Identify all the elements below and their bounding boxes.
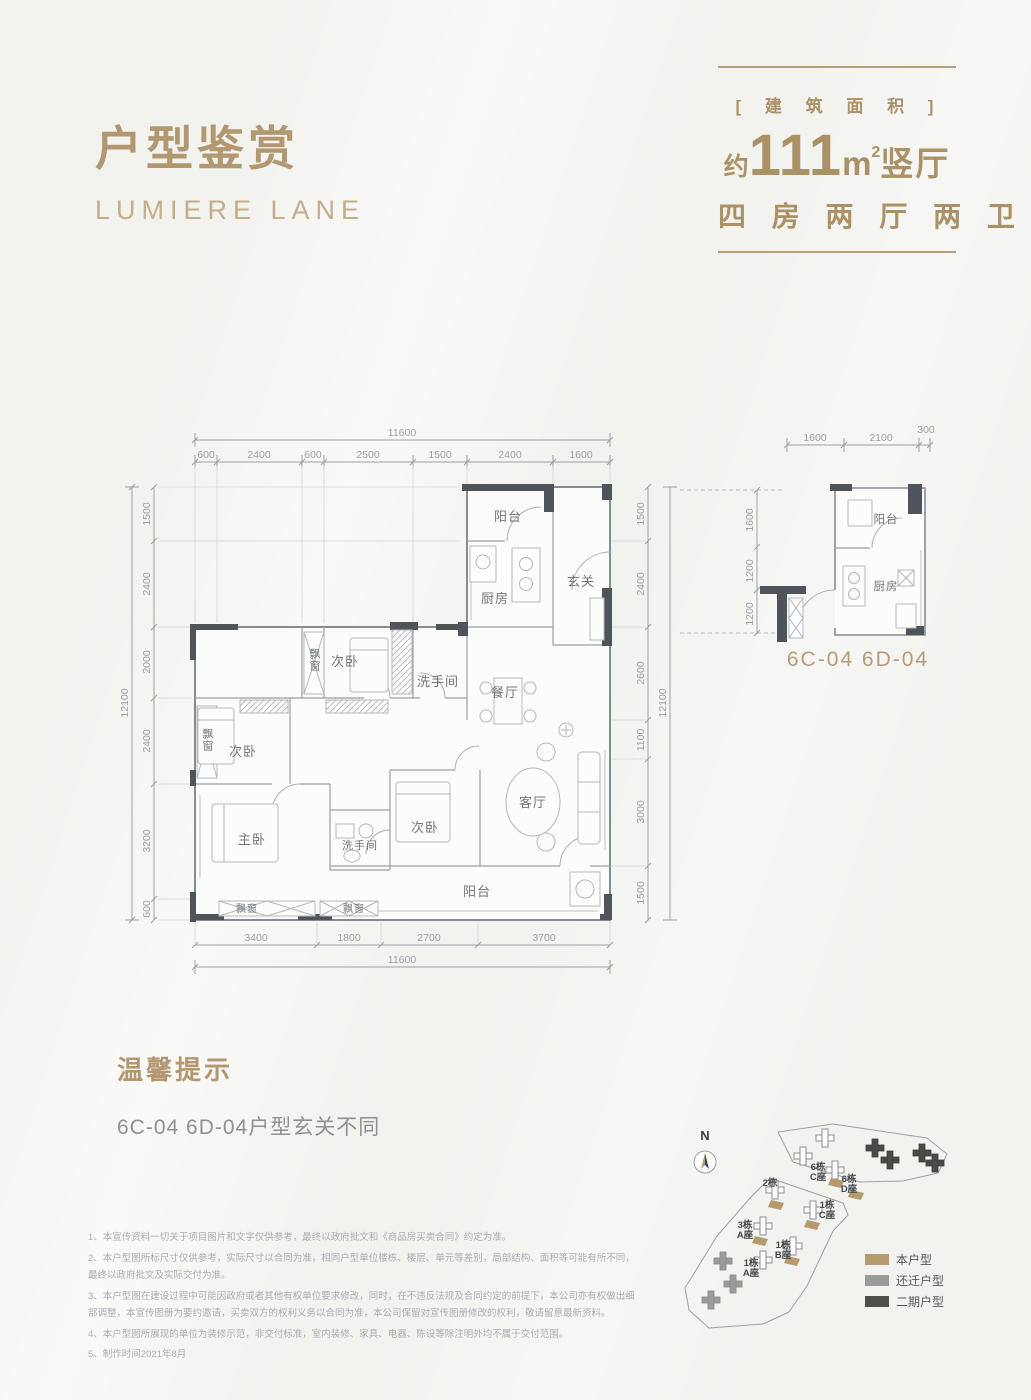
dim-right-1: 2400 [635, 572, 647, 596]
floorplan-drawing: 11600 600 2400 600 2500 1500 2400 1600 1… [0, 400, 1031, 1030]
legend-swatch-relocation [865, 1275, 889, 1286]
dim-left-3: 2400 [141, 729, 153, 753]
area-suffix: 竖厅 [880, 137, 950, 185]
mini-room-label-kitchen: 厨房 [874, 580, 899, 593]
building-label: C座 [810, 1171, 827, 1183]
dim-right-0: 1500 [635, 502, 647, 526]
north-label: N [700, 1128, 709, 1143]
legend-label-relocation: 还迁户型 [896, 1273, 944, 1288]
building-label: A座 [737, 1229, 754, 1241]
building-label: A座 [743, 1267, 760, 1279]
area-value: 111 [749, 127, 842, 185]
floorplan-poster: 户型鉴赏 LUMIERE LANE [ 建 筑 面 积 ] 约 111 m 2 … [0, 0, 1031, 1400]
gold-rule-top [718, 66, 956, 68]
dim-top-5: 2400 [498, 449, 522, 461]
dim-bottom-total: 11600 [388, 954, 417, 966]
page-title: 户型鉴赏 [95, 110, 365, 179]
room-label-bedroom-b: 次卧 [229, 744, 257, 759]
dim-left-total: 12100 [119, 688, 131, 717]
room-layout-label: 四 房 两 厅 两 卫 [718, 195, 956, 235]
dim-top-4: 1500 [428, 449, 452, 461]
room-label-bay-d: 飘窗 [343, 902, 365, 915]
room-label-living: 客厅 [519, 795, 547, 810]
area-unit: m [842, 145, 871, 183]
mini-dim-top-1: 2100 [869, 432, 893, 444]
area-unit-sup: 2 [871, 144, 880, 162]
mini-dim-top-0: 1600 [803, 432, 827, 444]
dim-top-2: 600 [304, 449, 322, 461]
site-legend: 本户型 还迁户型 二期户型 [865, 1252, 944, 1309]
building-label: 2栋 [763, 1177, 778, 1189]
room-label-balcony-top: 阳台 [494, 509, 522, 524]
room-label-balcony-bottom: 阳台 [463, 884, 491, 899]
area-bracket-label: [ 建 筑 面 积 ] [718, 92, 956, 117]
mini-dim-left-0: 1600 [744, 508, 756, 532]
room-label-bedroom-a: 次卧 [331, 654, 359, 669]
mini-plan-connector-lines [680, 490, 782, 633]
mini-dim-top-2: 300 [917, 424, 935, 436]
mini-dim-left-1: 1200 [744, 559, 756, 583]
dim-right-total: 12100 [657, 688, 669, 717]
disclaimer-line-3: 3、本户型图在建设过程中可能因政府或者其他有权单位要求修改，同时，在不违反法规及… [88, 1288, 636, 1323]
room-label-dining: 餐厅 [491, 685, 519, 700]
tips-content: 6C-04 6D-04户型玄关不同 [117, 1111, 380, 1141]
disclaimer-block: 1、本宣传资料一切关于项目图片和文字仅供参考，最终以政府批文和《商品房买卖合同》… [88, 1229, 636, 1367]
dim-top-3: 2500 [356, 449, 380, 461]
building-label: B座 [775, 1249, 792, 1261]
disclaimer-line-1: 1、本宣传资料一切关于项目图片和文字仅供参考，最终以政府批文和《商品房买卖合同》… [88, 1229, 636, 1247]
disclaimer-line-5: 5、制作时间2021年8月 [88, 1346, 636, 1364]
dim-left-4: 3200 [141, 829, 153, 853]
legend-label-current: 本户型 [896, 1252, 932, 1267]
tips-block: 温馨提示 6C-04 6D-04户型玄关不同 [117, 1050, 380, 1141]
building-label: C座 [819, 1209, 836, 1221]
room-label-kitchen: 厨房 [481, 591, 509, 606]
room-label-foyer: 玄关 [567, 574, 595, 589]
dim-bottom-0: 3400 [244, 932, 268, 944]
area-approx: 约 [724, 147, 749, 183]
gold-rule-bottom [718, 251, 956, 253]
compass-icon [694, 1151, 716, 1173]
building-label: D座 [841, 1183, 858, 1195]
mini-room-label-balcony: 阳台 [874, 512, 899, 526]
header: 户型鉴赏 LUMIERE LANE [95, 110, 365, 226]
dim-right-3: 1100 [635, 729, 647, 752]
dim-left-2: 2000 [141, 650, 153, 674]
mini-plan-caption: 6C-04 6D-04 [787, 648, 929, 671]
room-label-bay-b: 飘窗 [201, 728, 214, 752]
dim-right-5: 1500 [635, 881, 647, 905]
dim-left-5: 600 [141, 900, 153, 918]
dim-bottom-3: 3700 [532, 932, 556, 944]
dim-bottom-1: 1800 [337, 932, 361, 944]
dim-bottom-2: 2700 [417, 932, 441, 944]
tips-title: 温馨提示 [117, 1050, 380, 1087]
dim-left-0: 1500 [141, 502, 153, 526]
dim-right-2: 2600 [635, 661, 647, 685]
legend-label-phase2: 二期户型 [896, 1294, 944, 1309]
room-label-bedroom-c: 次卧 [411, 820, 439, 835]
dim-right-4: 3000 [635, 800, 647, 824]
disclaimer-line-2: 2、本户型图所标尺寸仅供参考，实际尺寸以合同为准，相同户型单位楼栋、楼层、单元等… [88, 1250, 636, 1285]
dim-top-1: 2400 [247, 449, 271, 461]
mini-plan-body: 阳台 厨房 6C-04 6D-04 [760, 484, 929, 671]
room-label-master: 主卧 [238, 832, 266, 847]
page-subtitle: LUMIERE LANE [95, 195, 365, 226]
site-map: N [675, 1118, 965, 1353]
mini-dim-left-2: 1200 [744, 602, 756, 626]
room-label-bay-a: 飘窗 [308, 648, 321, 672]
room-label-bay-c: 飘窗 [236, 902, 258, 915]
dim-top-total: 11600 [388, 427, 417, 439]
room-label-bath-a: 洗手间 [417, 674, 459, 689]
legend-swatch-phase2 [865, 1296, 889, 1307]
legend-swatch-current [865, 1254, 889, 1265]
dim-top-0: 600 [197, 449, 215, 461]
dim-top-6: 1600 [569, 449, 593, 461]
dim-left-1: 2400 [141, 572, 153, 596]
area-line: 约 111 m 2 竖厅 [718, 127, 956, 185]
disclaimer-line-4: 4、本户型图所展现的单位为装修示范，非交付标准，室内装修、家具、电器、陈设等除注… [88, 1326, 636, 1344]
area-block: [ 建 筑 面 积 ] 约 111 m 2 竖厅 四 房 两 厅 两 卫 [718, 66, 956, 253]
room-label-bath-b: 洗手间 [342, 838, 378, 852]
